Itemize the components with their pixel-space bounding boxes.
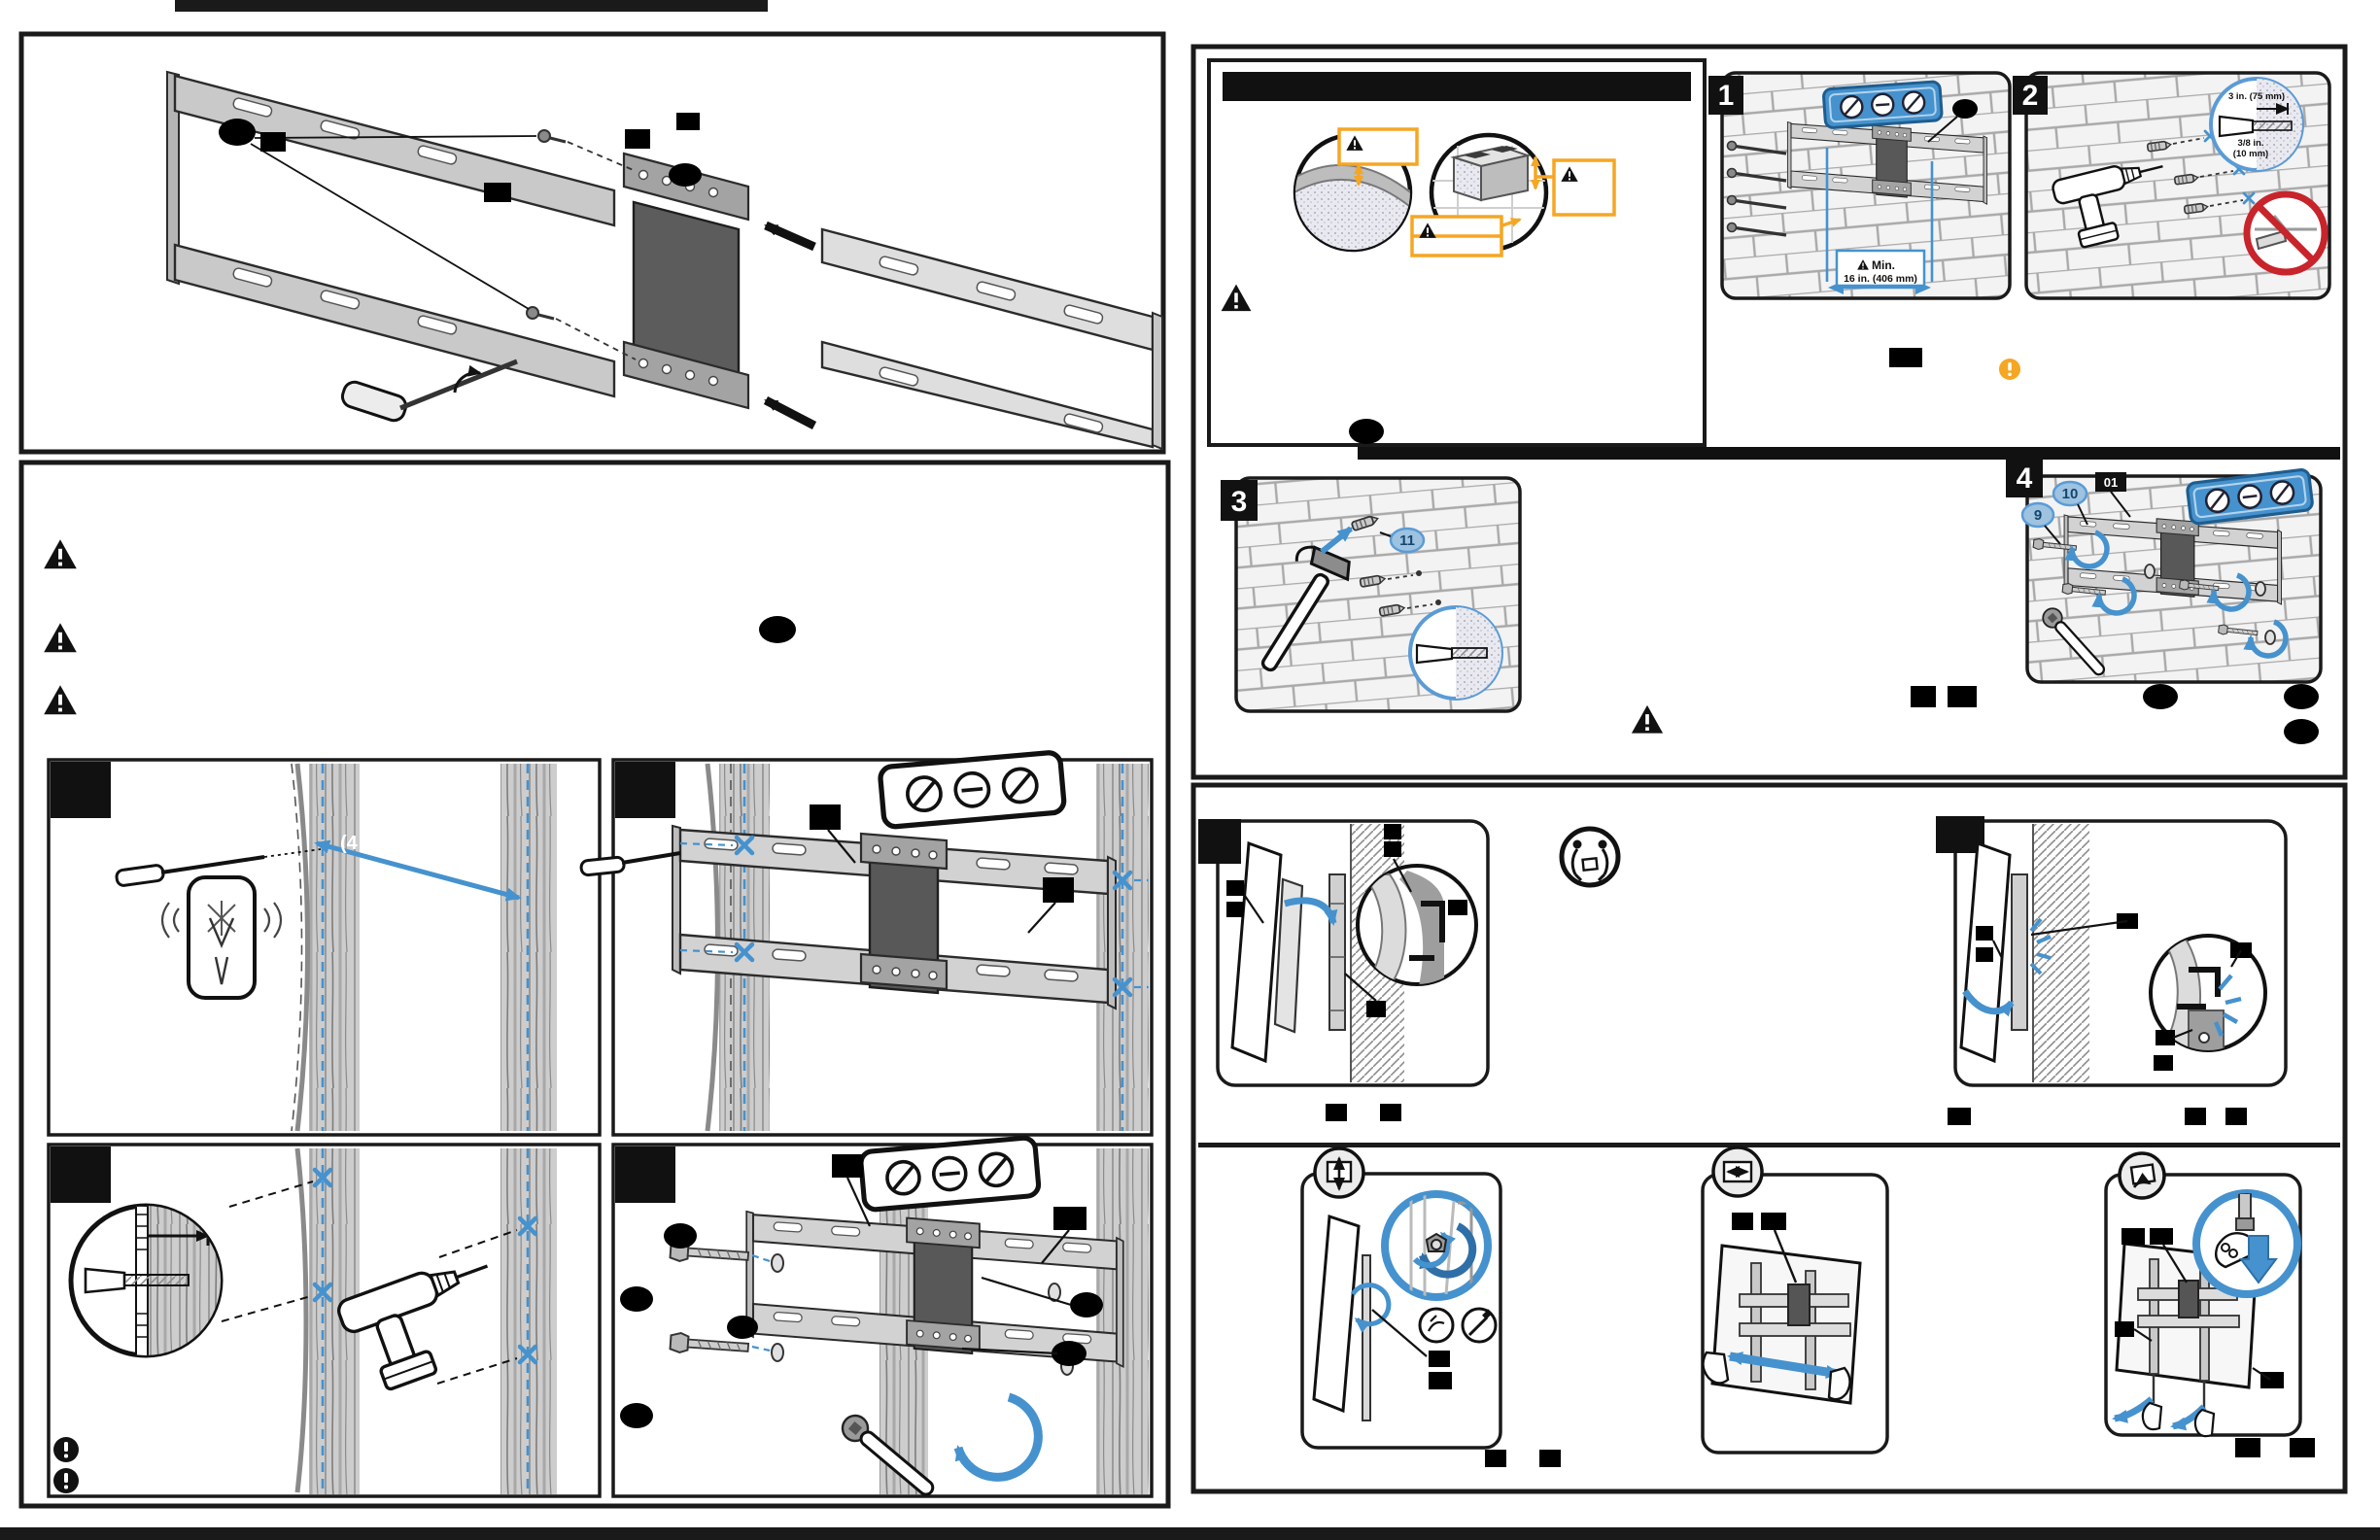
secure-tv-panel <box>1936 816 2286 1125</box>
concrete-caution-box <box>1209 60 1705 445</box>
remove-tv-panel <box>2106 1153 2315 1457</box>
step-number: 2 <box>2022 80 2039 112</box>
step-number: 3 <box>1231 486 1248 518</box>
redacted-text <box>759 616 796 643</box>
right-page-divider <box>1198 1143 2340 1147</box>
manual-page-svg: (4 <box>0 0 2380 1540</box>
bubble-level <box>860 1137 1040 1210</box>
screwdriver-icon <box>1463 1309 1496 1342</box>
hand-tighten-icon <box>1420 1309 1453 1342</box>
pilot-hole-detail <box>71 1206 224 1356</box>
step1-panel: 1 Min. 16 in. (406 mm) <box>1708 73 2010 298</box>
pull-string-detail-circle <box>2196 1193 2297 1294</box>
redacted-step-number <box>1198 819 1241 864</box>
step3-panel: 3 11 <box>1221 478 1520 711</box>
redacted-step-number <box>51 1146 111 1203</box>
svg-text:(10 mm): (10 mm) <box>2233 149 2268 159</box>
bottom-page-bar <box>0 1527 2380 1540</box>
redacted-step-number <box>51 762 111 818</box>
redacted-section-header <box>1358 447 2340 460</box>
svg-text:3/8 in.: 3/8 in. <box>2238 138 2264 149</box>
bubble-level <box>880 752 1065 828</box>
panel-find-studs: (4 <box>49 760 600 1135</box>
step2-panel: 2 3 in. (75 mm) 3/8 in. (10 mm) <box>2013 73 2329 298</box>
blue-bubble-level <box>1823 82 1942 128</box>
caution-exclamation-icon <box>1999 359 2020 380</box>
remove-tv-icon <box>2120 1153 2164 1198</box>
anchor-depth-label: 3 in. (75 mm) <box>2228 91 2285 102</box>
prohibition-no-drill-mortar <box>2247 194 2325 272</box>
redacted-section-title <box>1223 72 1691 101</box>
redacted-step-number <box>615 1146 675 1203</box>
svg-text:10: 10 <box>2062 486 2079 502</box>
center-bracket <box>2179 1281 2198 1318</box>
panel-mark-holes <box>580 752 1152 1135</box>
svg-text:11: 11 <box>1399 532 1415 549</box>
redacted-callout <box>1952 99 1978 119</box>
drill-depth-detail: 3 in. (75 mm) 3/8 in. (10 mm) <box>2211 79 2305 171</box>
stud-marking-fragment: (4 <box>340 833 359 854</box>
wingnut-detail-circle <box>1385 1194 1488 1297</box>
min-spacing-label: Min. 16 in. (406 mm) <box>1837 251 1924 286</box>
svg-text:Min.: Min. <box>1872 258 1895 272</box>
svg-text:01: 01 <box>2104 475 2118 490</box>
panel-bolt-plate <box>613 1137 1152 1501</box>
top-runoff-bar <box>175 0 768 12</box>
step4-panel: 4 01 10 9 <box>2006 457 2321 682</box>
slide-adjust-panel <box>1703 1147 1887 1453</box>
step-number: 1 <box>1718 80 1735 112</box>
redacted-step-number <box>615 762 675 818</box>
svg-text:16 in. (406 mm): 16 in. (406 mm) <box>1844 273 1917 285</box>
step-number: 4 <box>2017 462 2033 495</box>
horizontal-slide-icon <box>1713 1147 1762 1196</box>
hang-tv-panel <box>1198 819 1488 1121</box>
note-exclamation-icon <box>53 1437 79 1462</box>
two-person-lift-icon <box>1562 829 1618 885</box>
svg-text:9: 9 <box>2034 507 2042 524</box>
panel-drill-pilot-holes <box>49 1145 600 1496</box>
anchor-flush-detail <box>1410 607 1504 700</box>
manual-spread: (4 <box>0 0 2380 1540</box>
redacted-text <box>1889 348 1922 367</box>
redacted-text <box>1349 419 1384 444</box>
note-exclamation-icon <box>53 1468 79 1493</box>
wall-plate-edge <box>1329 874 1345 1030</box>
center-bracket <box>1788 1284 1810 1325</box>
hook-detail-circle <box>1358 866 1476 986</box>
tilt-adjust-icon <box>1315 1148 1363 1197</box>
